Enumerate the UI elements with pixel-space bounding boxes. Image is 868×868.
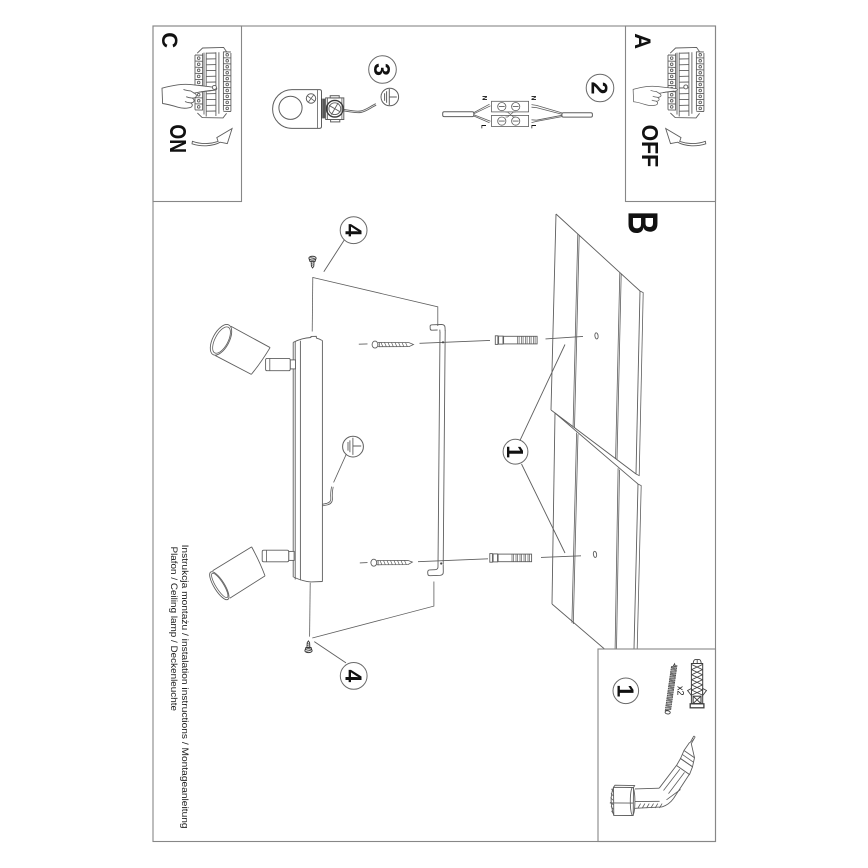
svg-text:1: 1 [502, 445, 528, 458]
svg-text:1: 1 [613, 684, 639, 697]
svg-text:4: 4 [340, 224, 366, 237]
svg-text:N: N [529, 96, 536, 101]
svg-text:B: B [620, 211, 667, 234]
svg-text:4: 4 [340, 670, 366, 683]
svg-text:N: N [480, 96, 487, 101]
svg-text:OFF: OFF [637, 125, 663, 168]
svg-text:x2: x2 [676, 686, 686, 696]
svg-text:Plafon / Ceiling lamp / Decken: Plafon / Ceiling lamp / Deckenleuchte [168, 547, 179, 712]
svg-text:L: L [480, 125, 487, 129]
svg-text:ON: ON [165, 124, 191, 153]
svg-text:2: 2 [587, 82, 613, 95]
svg-text:L: L [529, 125, 536, 129]
svg-text:C: C [157, 32, 182, 48]
svg-text:3: 3 [369, 63, 395, 76]
svg-text:A: A [630, 33, 655, 49]
svg-text:Instrukcja montażu / instalati: Instrukcja montażu / instalation instruc… [179, 545, 190, 829]
